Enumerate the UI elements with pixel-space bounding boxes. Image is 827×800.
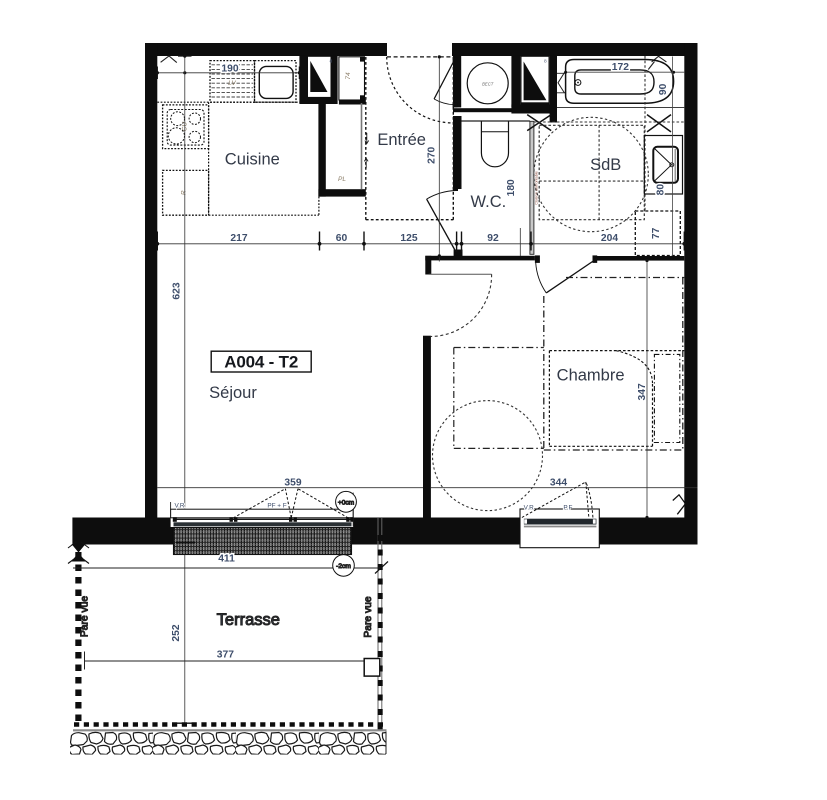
svg-text:A004 - T2: A004 - T2 xyxy=(224,352,298,371)
svg-text:180: 180 xyxy=(506,179,517,196)
svg-text:204: 204 xyxy=(601,233,618,244)
svg-text:V.R: V.R xyxy=(174,502,184,509)
svg-text:BECT: BECT xyxy=(482,81,494,86)
svg-text:V.R: V.R xyxy=(524,505,534,512)
svg-text:90: 90 xyxy=(658,83,669,95)
svg-text:PL: PL xyxy=(338,176,346,183)
svg-text:LV: LV xyxy=(228,80,236,87)
svg-text:80: 80 xyxy=(655,184,666,196)
svg-text:Cloison démontable: Cloison démontable xyxy=(534,171,538,205)
svg-text:411: 411 xyxy=(218,554,235,565)
svg-text:-2cm: -2cm xyxy=(336,563,351,570)
svg-text:Cuisine: Cuisine xyxy=(225,151,280,169)
svg-text:359: 359 xyxy=(284,478,301,489)
svg-text:125: 125 xyxy=(400,233,417,244)
svg-text:74: 74 xyxy=(345,72,352,80)
svg-text:217: 217 xyxy=(230,233,247,244)
svg-text:PF + F: PF + F xyxy=(267,502,286,509)
svg-text:Terrasse: Terrasse xyxy=(217,611,280,629)
svg-text:77: 77 xyxy=(651,227,662,239)
svg-text:+0cm: +0cm xyxy=(338,499,355,506)
svg-text:W.C.: W.C. xyxy=(471,193,507,211)
svg-text:P.F: P.F xyxy=(563,505,572,512)
svg-text:172: 172 xyxy=(612,62,629,73)
svg-text:377: 377 xyxy=(217,650,234,661)
svg-text:60: 60 xyxy=(336,233,348,244)
svg-text:623: 623 xyxy=(171,282,182,299)
svg-text:SdB: SdB xyxy=(590,156,621,174)
svg-text:Séjour: Séjour xyxy=(209,384,257,402)
svg-text:Pare vue: Pare vue xyxy=(80,596,91,637)
svg-text:347: 347 xyxy=(637,383,648,400)
svg-text:Entrée: Entrée xyxy=(377,131,426,149)
svg-text:344: 344 xyxy=(550,478,567,489)
svg-text:8: 8 xyxy=(330,59,333,65)
svg-text:190: 190 xyxy=(221,64,238,75)
svg-text:8: 8 xyxy=(544,59,547,65)
svg-text:270: 270 xyxy=(426,146,437,163)
svg-text:Pare vue: Pare vue xyxy=(363,596,374,637)
svg-text:R: R xyxy=(181,190,188,195)
svg-text:92: 92 xyxy=(487,233,499,244)
svg-text:252: 252 xyxy=(171,624,182,641)
svg-text:Chambre: Chambre xyxy=(557,367,625,385)
